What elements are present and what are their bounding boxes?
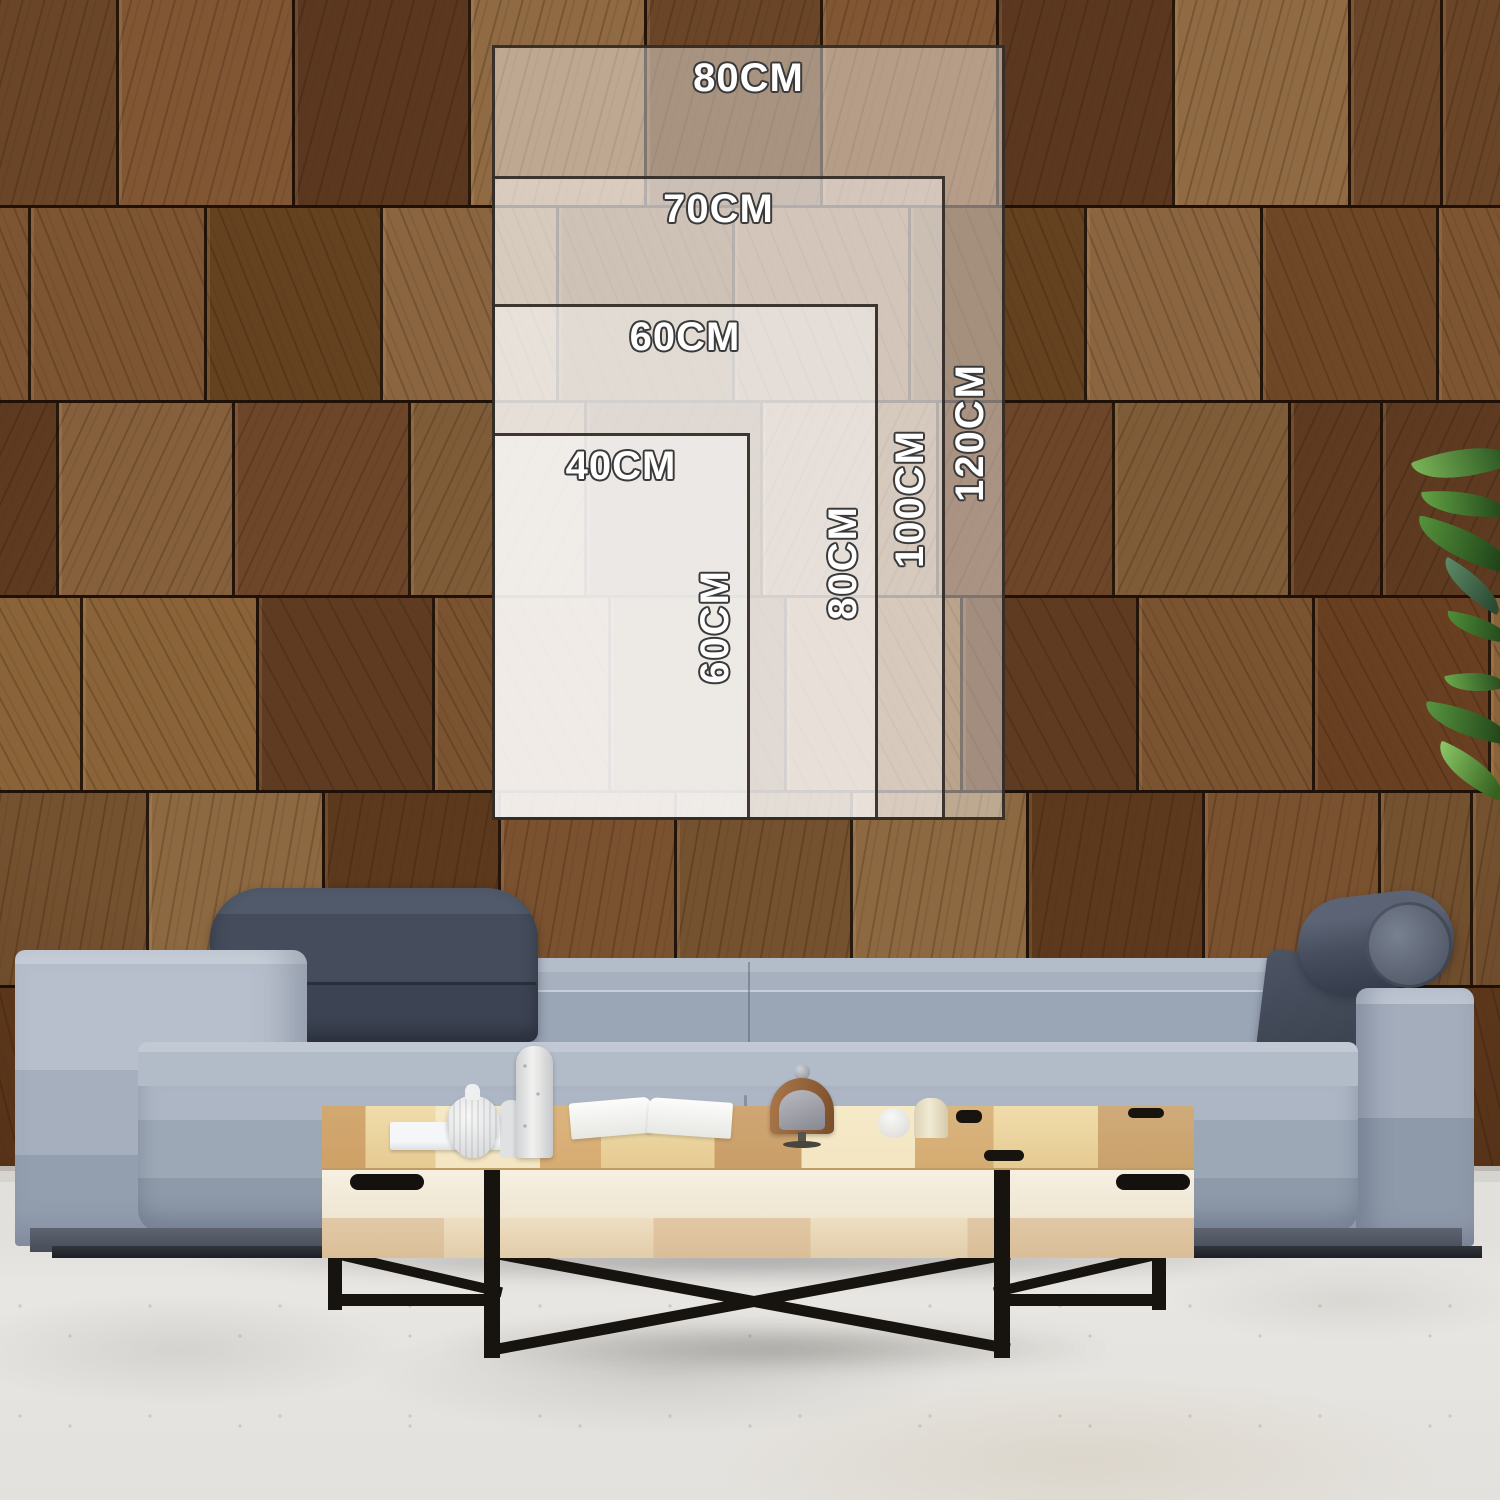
cloche-foot — [783, 1141, 821, 1148]
table-top-slot — [984, 1150, 1024, 1161]
open-book — [570, 1094, 732, 1140]
cream-cylinder-decor — [914, 1098, 948, 1138]
book-page-right — [647, 1097, 733, 1139]
plant — [1390, 445, 1500, 805]
sofa-shadow — [18, 1252, 1470, 1294]
plant-leaf — [1422, 701, 1500, 745]
white-egg-decor — [878, 1108, 910, 1138]
tall-vase — [516, 1046, 553, 1158]
height-label-wrap: 60CM — [693, 436, 737, 817]
width-label: 80CM — [495, 56, 1002, 101]
width-label: 70CM — [495, 187, 942, 232]
height-label: 120CM — [948, 363, 993, 502]
table-leg-bar — [996, 1294, 1166, 1306]
height-label: 80CM — [821, 505, 866, 620]
table-leg-bar — [328, 1294, 500, 1306]
plant-leaf — [1444, 664, 1500, 700]
size-guide-scene: 80CM 120CM 70CM 100CM 60CM 80CM 40CM 60C… — [0, 0, 1500, 1500]
height-label-wrap: 120CM — [948, 48, 992, 817]
height-label-wrap: 80CM — [821, 307, 865, 817]
sofa-backrest-seam — [748, 962, 750, 1046]
table-leg-post-front — [994, 1170, 1010, 1358]
table-shadow — [326, 1316, 1234, 1380]
table-top-slot — [1128, 1108, 1164, 1118]
height-label: 60CM — [693, 569, 738, 684]
sofa-right-armrest — [1356, 988, 1474, 1246]
decor-cloche — [770, 1064, 836, 1148]
cloche-glass — [779, 1090, 825, 1130]
height-label: 100CM — [888, 429, 933, 568]
table-handle — [350, 1174, 424, 1190]
size-option-40x60: 40CM 60CM — [492, 433, 750, 820]
height-label-wrap: 100CM — [888, 179, 932, 817]
table-handle — [1116, 1174, 1190, 1190]
table-leg-post-front — [484, 1170, 500, 1358]
table-top-slot — [956, 1110, 982, 1123]
plant-leaf — [1421, 486, 1500, 522]
plant-leaf — [1445, 611, 1500, 644]
book-page-left — [569, 1096, 654, 1139]
plant-leaf — [1429, 741, 1500, 802]
table-lower-band — [322, 1218, 1194, 1258]
table-body — [322, 1170, 1194, 1218]
width-label: 60CM — [495, 315, 875, 360]
